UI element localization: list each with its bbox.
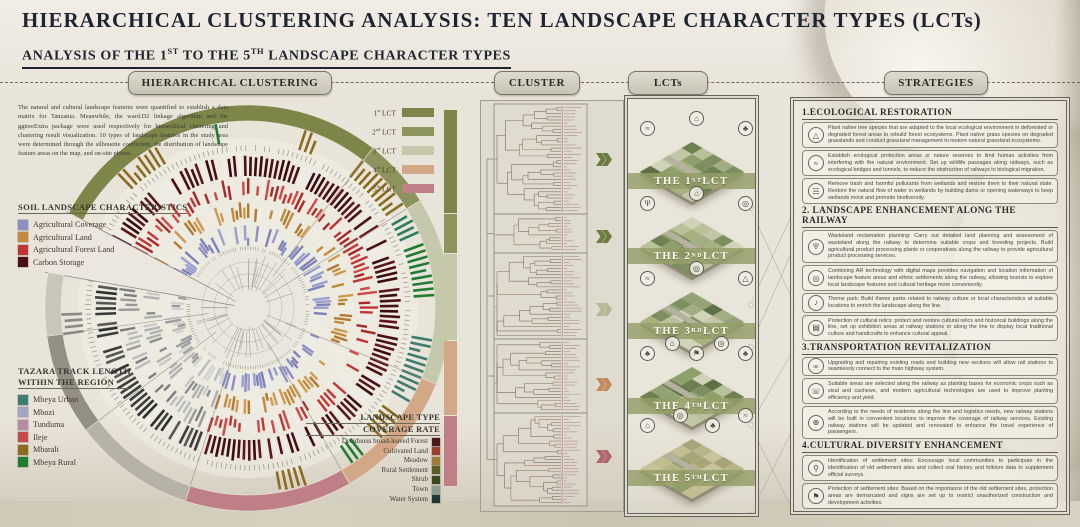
swatch — [402, 108, 434, 117]
strategy-item-text: Suitable areas are selected along the ra… — [828, 381, 1053, 401]
chevron-arrow-icon — [596, 378, 608, 391]
lct-bar-segment — [444, 416, 457, 486]
legend-item: Agricultural Forest Land — [18, 245, 187, 255]
swatch — [432, 457, 440, 465]
lct-landscape-tile — [640, 367, 745, 427]
lct-bar-segment — [444, 254, 457, 340]
legend-item: Mbozi — [18, 407, 131, 417]
legend-item: Town — [306, 486, 440, 494]
swatch — [18, 457, 28, 467]
chevron-arrow-icon — [596, 450, 608, 463]
strategy-item-text: Protection of cultural relics: protect a… — [828, 318, 1053, 338]
swatch — [402, 184, 434, 193]
flow-step-hierarchical-clustering: HIERARCHICAL CLUSTERING — [128, 71, 332, 95]
building-icon: ⌂ — [640, 418, 655, 433]
lct-banner-label: THE 3RD LCT — [628, 323, 755, 339]
strategy-item: △Plant native tree species that are adap… — [802, 122, 1058, 148]
wheat-icon: Ψ — [640, 196, 655, 211]
strategy-item-text: Plant native tree species that are adapt… — [828, 125, 1053, 145]
swatch — [432, 476, 440, 484]
swatch — [432, 447, 440, 455]
tazara-legend-title: TAZARA TRACK LENGTHWITHIN THE REGION — [18, 366, 131, 389]
swatch — [18, 420, 28, 430]
legend-item: Carbon Storage — [18, 257, 187, 267]
map-icon: ◎ — [673, 408, 688, 423]
lct-landscape-tile — [640, 439, 745, 499]
chevron-arrow-icon — [596, 303, 608, 316]
strategy-item: ≈Establish ecological protection areas o… — [802, 150, 1058, 176]
swatch — [432, 438, 440, 446]
strategy-item-text: Identification of settlement sites: Enco… — [828, 458, 1053, 478]
lct-banner-label: THE 4TH LCT — [628, 398, 755, 414]
legend-item: 4th LCT — [350, 165, 434, 174]
flow-step-cluster: CLUSTER — [494, 71, 580, 95]
strategy-item-text: Theme park: Build theme parks related to… — [828, 296, 1053, 309]
swatch — [18, 432, 28, 442]
strategy-item: ☵Remove trash and harmful pollutants fro… — [802, 178, 1058, 204]
legend-item: Deciduous broad-leaved Forest — [306, 438, 440, 446]
map-icon: ◎ — [689, 261, 704, 276]
ar-map-icon: ◎ — [808, 270, 824, 286]
sapling-icon: △ — [808, 127, 824, 143]
strategy-section-heading: 3.TRANSPORTATION REVITALIZATION — [802, 343, 1058, 355]
legend-item: 1st LCT — [350, 108, 434, 117]
page-subtitle: ANALYSIS OF THE 1ST TO THE 5TH LANDSCAPE… — [22, 47, 511, 69]
flag-icon: ⚑ — [689, 346, 704, 361]
mountain-icon: △ — [738, 271, 753, 286]
strategy-section-heading: 2. LANDSCAPE ENHANCEMENT ALONG THE RAILW… — [802, 206, 1058, 228]
strategy-item: ΨWasteland reclamation planning: Carry o… — [802, 230, 1058, 263]
strategy-item-text: Remove trash and harmful pollutants from… — [828, 181, 1053, 201]
legend-item: Mbeya Urban — [18, 395, 131, 405]
wave-icon: ≈ — [738, 408, 753, 423]
strategy-item-text: Upgrading and repairing existing roads a… — [828, 360, 1053, 373]
strategy-item: ⌂Education at settlement sites: Carry ou… — [802, 511, 1058, 512]
swatch — [402, 127, 434, 136]
swatch — [432, 466, 440, 474]
strategies-panel: 1.ECOLOGICAL RESTORATION△Plant native tr… — [793, 100, 1067, 512]
building-icon: ⌂ — [689, 111, 704, 126]
legend-item: 2nd LCT — [350, 127, 434, 136]
strategy-section-heading: 4.CULTURAL DIVERSITY ENHANCEMENT — [802, 441, 1058, 453]
page-title: HIERARCHICAL CLUSTERING ANALYSIS: TEN LA… — [22, 8, 982, 33]
legend-item: Agricultural Coverage — [18, 220, 187, 230]
flow-step-lcts: LCTs — [628, 71, 708, 95]
legend-item: Tunduma — [18, 420, 131, 430]
strategy-item: ⚲Identification of settlement sites: Enc… — [802, 455, 1058, 481]
swatch — [18, 407, 28, 417]
chevron-arrow-icon — [596, 230, 608, 243]
strategy-item: ⚑Protection of settlement sites: Based o… — [802, 483, 1058, 509]
chevron-arrow-icon — [596, 153, 608, 166]
sign-icon: ⚑ — [808, 488, 824, 504]
lct-landscape-tile — [640, 292, 745, 352]
map-icon: ◎ — [738, 196, 753, 211]
swatch — [18, 220, 28, 230]
strategy-item-text: Establish ecological protection areas or… — [828, 153, 1053, 173]
strategy-item: ☏Suitable areas are selected along the r… — [802, 378, 1058, 404]
lct-mapping-bar — [444, 110, 457, 487]
legend-item: Ileje — [18, 432, 131, 442]
lct-bar-segment — [444, 110, 457, 213]
legend-item: Shrub — [306, 476, 440, 484]
strategy-item-text: According to the needs of residents alon… — [828, 409, 1053, 436]
legend-item: Meadow — [306, 457, 440, 465]
telephone-icon: ☏ — [808, 383, 824, 399]
tree-icon: ♣ — [738, 346, 753, 361]
landscape-legend-title: LANDSCAPE TYPE — [306, 413, 440, 424]
building-icon: ⌂ — [689, 186, 704, 201]
building-icon: ⌂ — [665, 336, 680, 351]
landscape-legend-title2: COVERAGE RATE — [306, 425, 440, 436]
lct-tiles-panel: ≈⌂♣THE 1ST LCTΨ⌂◎THE 2ND LCT≈◎△THE 3RD L… — [627, 98, 756, 514]
lct-banner-label: THE 5TH LCT — [628, 470, 755, 486]
wetland-icon: ☵ — [808, 183, 824, 199]
strategy-item: ▤Protection of cultural relics: protect … — [802, 315, 1058, 341]
strategy-item-text: Protection of settlement sites: Based on… — [828, 486, 1053, 506]
book-icon: ▤ — [808, 320, 824, 336]
strategy-item: ⊕According to the needs of residents alo… — [802, 406, 1058, 439]
strategy-section-heading: 1.ECOLOGICAL RESTORATION — [802, 108, 1058, 120]
strategy-item: ♪Theme park: Build theme parks related t… — [802, 293, 1058, 312]
tree-icon: ♣ — [738, 121, 753, 136]
swatch — [402, 146, 434, 155]
wave-icon: ≈ — [808, 155, 824, 171]
soil-legend-title: SOIL LANDSCAPE CHARACTERISTICS — [18, 202, 187, 214]
landscape-type-legend: LANDSCAPE TYPE COVERAGE RATE Deciduous b… — [306, 413, 440, 505]
lct-bar-segment — [444, 214, 457, 253]
legend-item: Cultivated Land — [306, 447, 440, 455]
road-link-icon: ∞ — [808, 358, 824, 374]
method-intro-text: The natural and cultural landscape featu… — [18, 103, 228, 159]
bird-icon: ≈ — [640, 121, 655, 136]
strategy-item-text: Combining AR technology with digital map… — [828, 268, 1053, 288]
leaf-icon: ♣ — [640, 346, 655, 361]
legend-item: Water System — [306, 495, 440, 503]
swatch — [18, 232, 28, 242]
map-icon: ◎ — [714, 336, 729, 351]
station-icon: ⊕ — [808, 415, 824, 431]
legend-item: 3rd LCT — [350, 146, 434, 155]
legend-item: Mbeya Rural — [18, 457, 131, 467]
strategy-item: ◎Combining AR technology with digital ma… — [802, 265, 1058, 291]
legend-item: Mbarali — [18, 445, 131, 455]
swatch — [18, 445, 28, 455]
swatch — [402, 165, 434, 174]
strategy-item: ∞Upgrading and repairing existing roads … — [802, 357, 1058, 376]
soil-legend: SOIL LANDSCAPE CHARACTERISTICS Agricultu… — [18, 197, 187, 270]
legend-item: Rural Settlement — [306, 466, 440, 474]
legend-item: Agricultural Land — [18, 232, 187, 242]
music-note-icon: ♪ — [808, 295, 824, 311]
bird-icon: ≈ — [640, 271, 655, 286]
swatch — [18, 395, 28, 405]
swatch — [18, 245, 28, 255]
swatch — [432, 486, 440, 494]
legend-item: 5th LCT — [350, 184, 434, 193]
tazara-legend: TAZARA TRACK LENGTHWITHIN THE REGION Mbe… — [18, 366, 131, 470]
strategy-item-text: Wasteland reclamation planning: Carry ou… — [828, 233, 1053, 260]
lct-bar-segment — [444, 341, 457, 415]
swatch — [432, 495, 440, 503]
magnifier-icon: ⚲ — [808, 460, 824, 476]
flow-step-strategies: STRATEGIES — [884, 71, 988, 95]
tree-icon: ♣ — [705, 418, 720, 433]
wheat-sheaf-icon: Ψ — [808, 239, 824, 255]
lct-legend: 1st LCT 2nd LCT 3rd LCT 4th LCT 5th LCT — [350, 108, 434, 203]
swatch — [18, 257, 28, 267]
